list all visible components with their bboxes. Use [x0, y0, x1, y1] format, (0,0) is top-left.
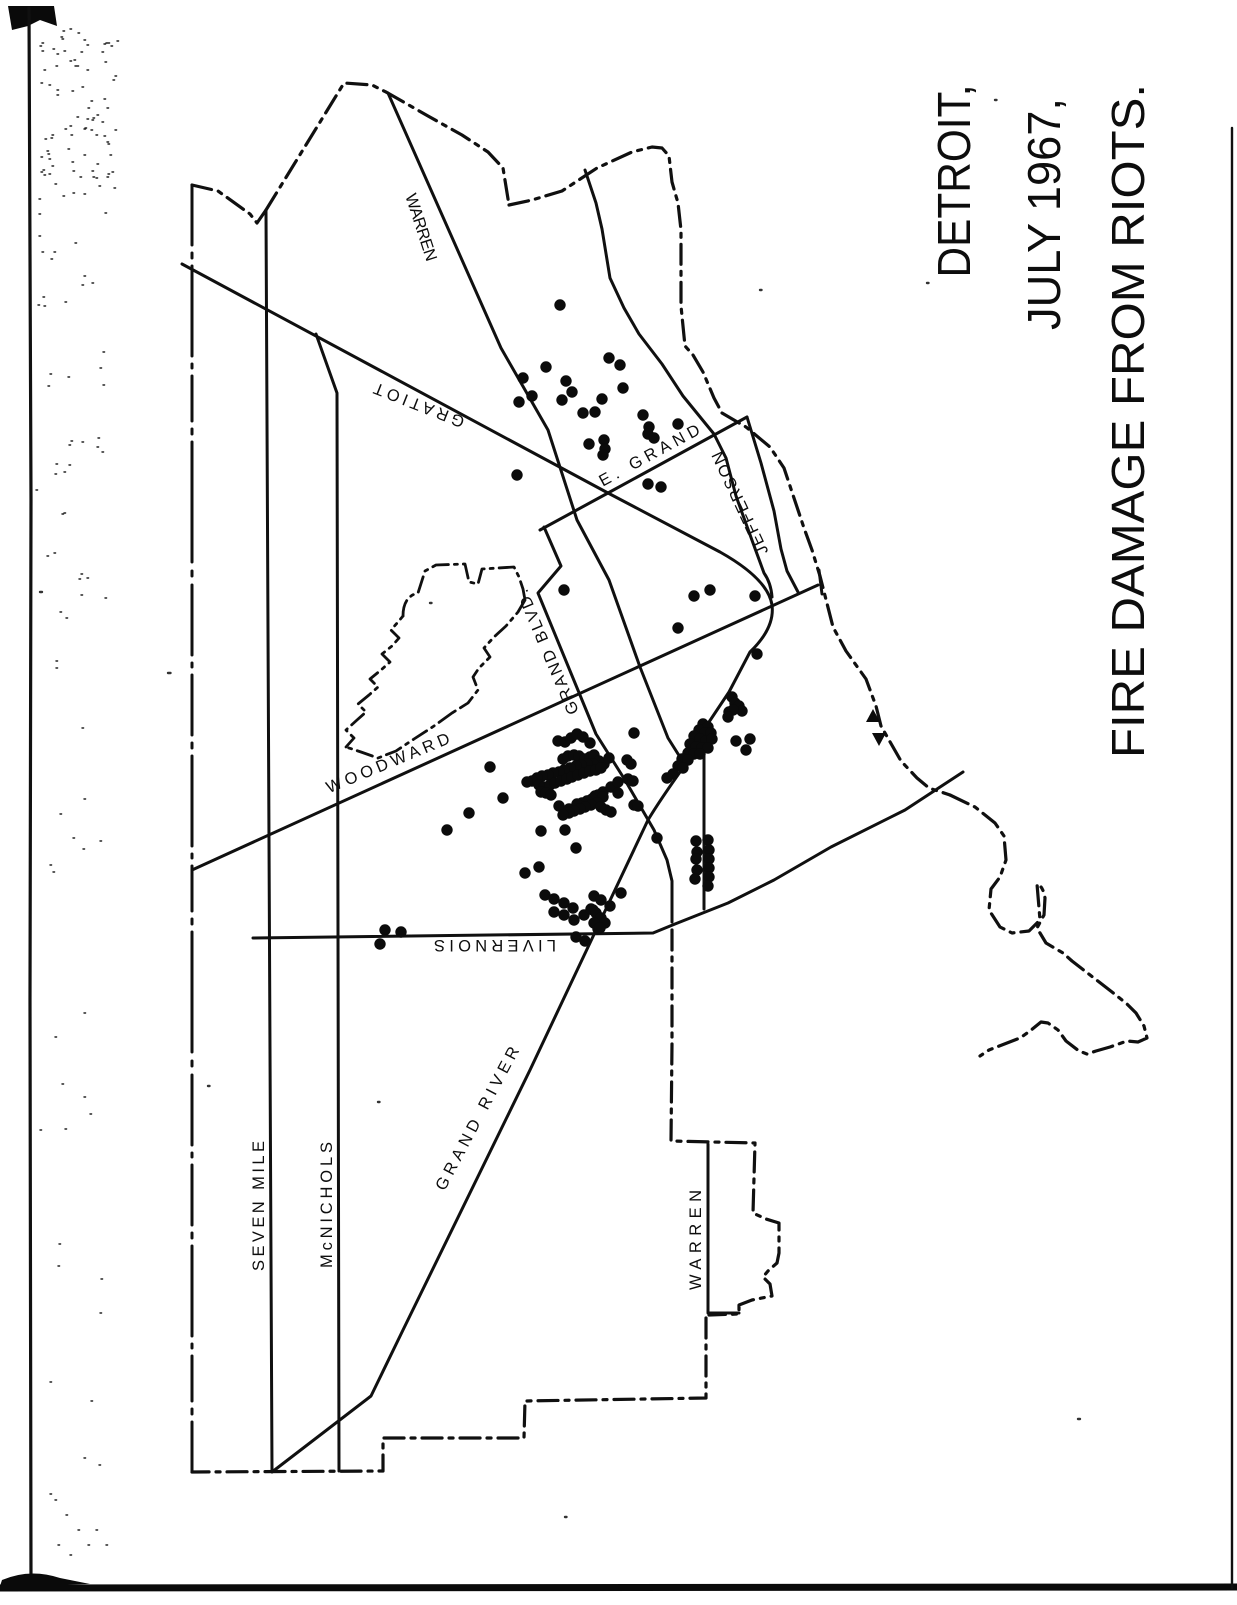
svg-text:SEVEN MILE: SEVEN MILE: [250, 1141, 268, 1271]
svg-text:McNICHOLS: McNICHOLS: [318, 1142, 336, 1268]
svg-text:JULY 1967,: JULY 1967,: [1018, 98, 1070, 330]
svg-text:FIRE DAMAGE FROM RIOTS.: FIRE DAMAGE FROM RIOTS.: [1102, 84, 1154, 758]
svg-text:DETROIT,: DETROIT,: [928, 85, 980, 278]
